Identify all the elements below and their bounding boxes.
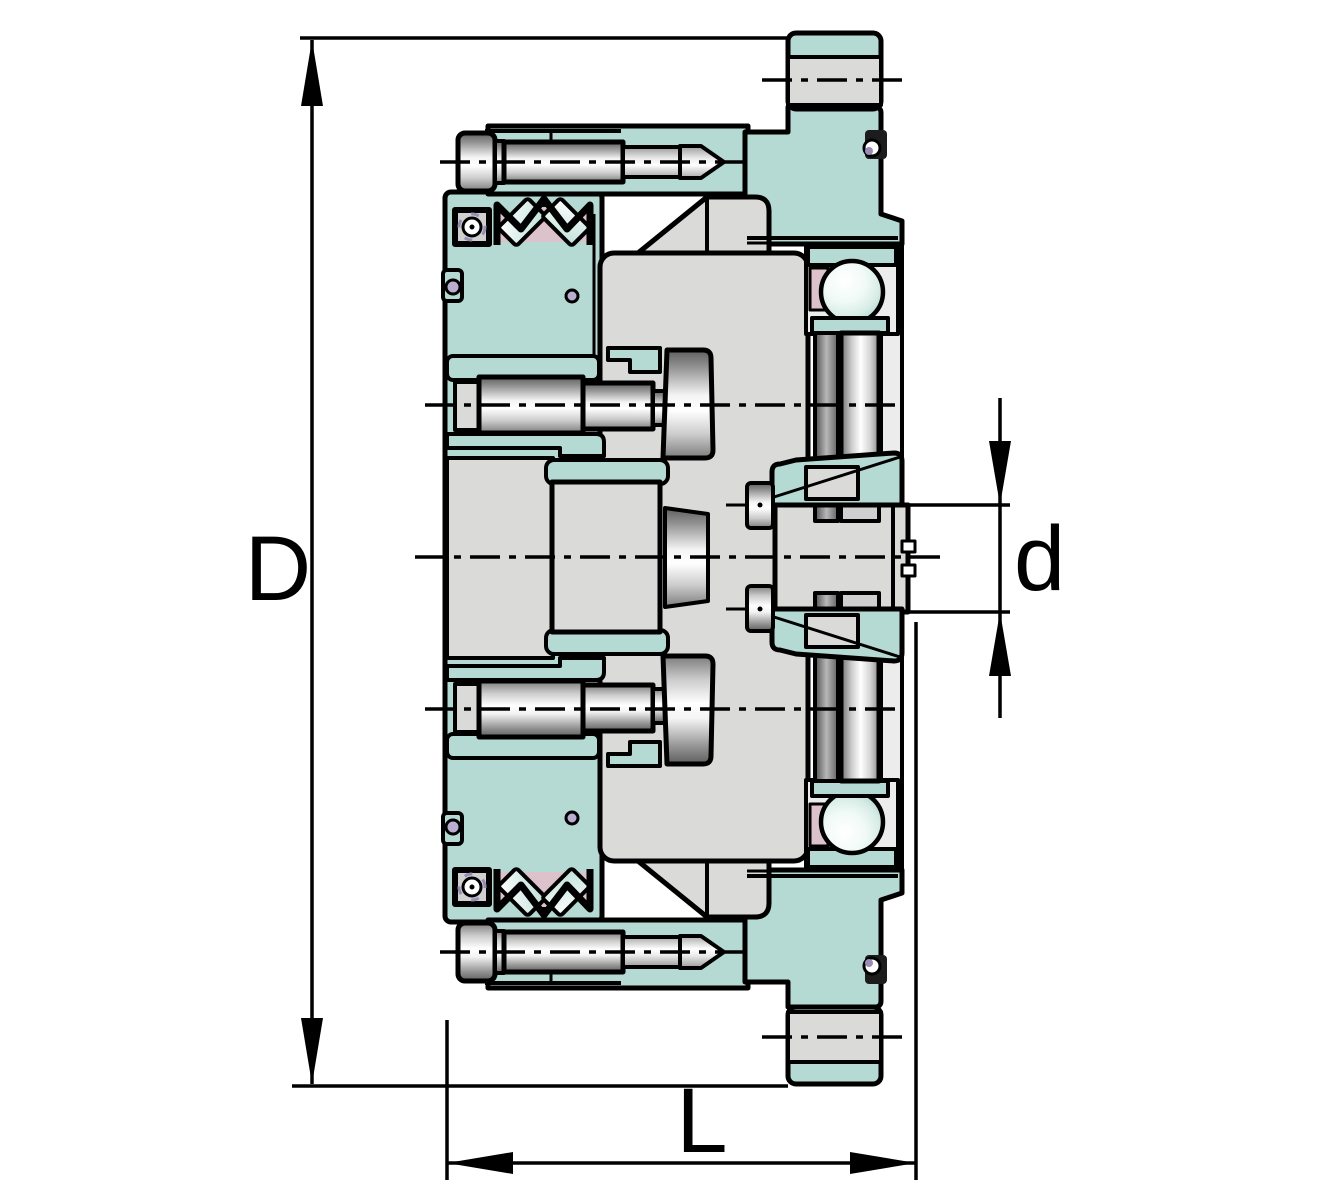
label-shaft-diameter: d — [1014, 508, 1065, 610]
label-length: L — [676, 1070, 727, 1172]
label-outer-diameter: D — [245, 518, 311, 620]
flange-foot-top — [788, 33, 881, 109]
shaft-notch-upper — [902, 541, 915, 552]
flange-foot-bottom — [788, 1007, 881, 1084]
gear-unit-section-drawing: D L d — [0, 0, 1330, 1200]
shaft-notch-lower — [902, 565, 915, 576]
technical-drawing-page: D L d — [0, 0, 1330, 1200]
